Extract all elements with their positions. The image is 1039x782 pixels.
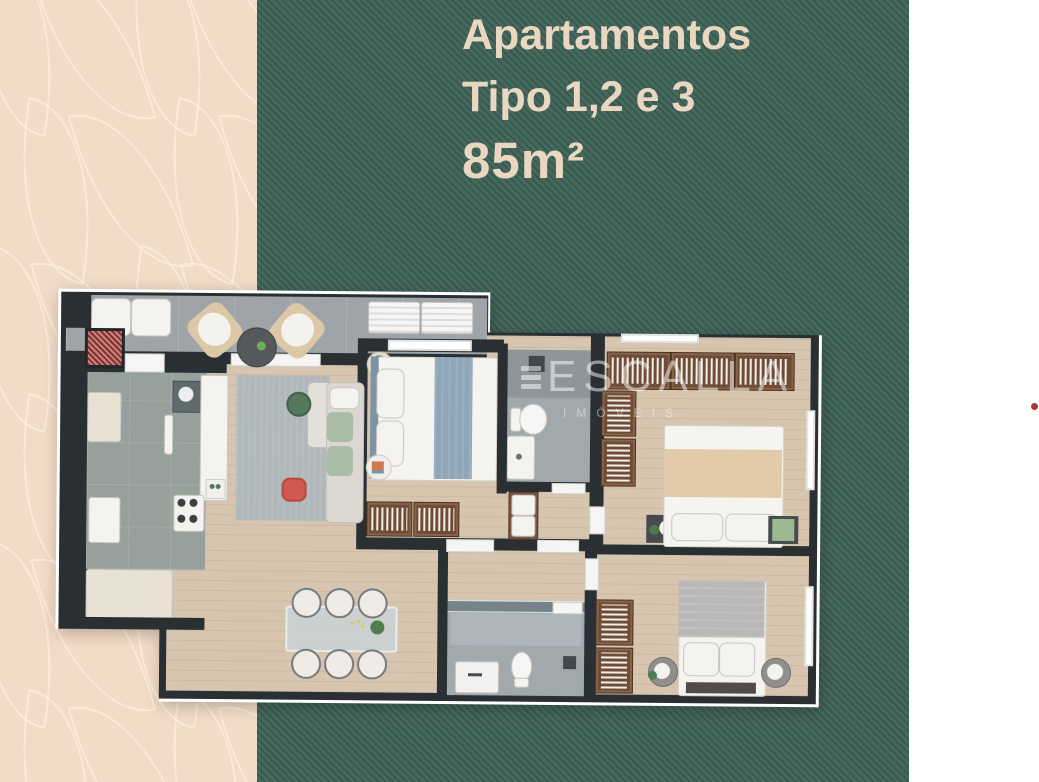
dining-chair (357, 588, 387, 618)
sofa-pillow (329, 387, 359, 409)
vertical-garden-panel (85, 328, 125, 368)
wardrobe-rack (595, 647, 633, 693)
dining-chair (324, 588, 354, 618)
burner-icon (189, 515, 197, 523)
toilet-tank (514, 678, 529, 688)
bed2-pillow (719, 642, 755, 676)
master-top-window (621, 334, 699, 344)
sofa-cushion-green (327, 446, 353, 476)
kitchen-counter-sink-cabinet (88, 497, 120, 543)
hanging-clothes (607, 443, 630, 481)
hanging-clothes (601, 604, 627, 640)
faucet-icon (468, 673, 482, 676)
sofa-cushion-green (327, 412, 353, 442)
watermark-brand: ESCALLA (547, 352, 794, 402)
plant-icon (648, 671, 657, 680)
dining-chair (291, 649, 321, 679)
kitchen-shelf (164, 415, 173, 455)
master-bed-blanket (664, 449, 782, 498)
bedroom2-side-window (804, 586, 814, 666)
bed2-gray-blanket (678, 580, 764, 638)
books-icon (372, 461, 384, 470)
bottle-icon (210, 484, 215, 489)
closet-rack-side (601, 438, 636, 486)
title-line-1: Apartamentos (462, 4, 751, 66)
title-block: Apartamentos Tipo 1,2 e 3 85m² (462, 4, 751, 194)
faucet-icon (516, 454, 522, 460)
bed2-pillow (683, 642, 719, 676)
bench-cushion (511, 516, 535, 537)
burner-icon (189, 499, 197, 507)
bathroom2-mirror-wall (450, 613, 581, 646)
red-pouf (282, 478, 307, 502)
wall-column (61, 292, 91, 328)
table-plant-icon (257, 341, 266, 350)
watermark: ESCALLA IMÓVEIS (521, 352, 794, 420)
watermark-tagline: IMÓVEIS (563, 406, 794, 420)
hanging-clothes (418, 508, 454, 531)
bedroom1-door (446, 539, 494, 552)
kitchen-counter-bottom (85, 569, 172, 620)
dining-chair (291, 588, 321, 618)
plant-icon (649, 525, 659, 535)
bed1-pillow (376, 368, 404, 418)
bathroom1-door (552, 483, 586, 494)
bedroom1-window (388, 340, 472, 352)
master-side-window (806, 410, 816, 490)
poster-page: { "page": {"width": 1039, "height": 782,… (0, 0, 1039, 782)
marble-vanity (455, 661, 499, 693)
ac-unit (368, 301, 420, 333)
plate-plant-icon (370, 620, 384, 634)
kitchen-door (125, 353, 165, 372)
white-margin (909, 0, 1039, 782)
bed1-blue-runner (434, 357, 473, 479)
burner-icon (177, 515, 185, 523)
green-mat (772, 519, 794, 541)
wall (497, 343, 508, 493)
dining-chair (324, 649, 354, 679)
wardrobe-rack (413, 502, 459, 537)
sink-basin (178, 387, 193, 402)
bedroom2-door (585, 558, 599, 590)
master-pillow (671, 513, 723, 541)
red-dot (1031, 403, 1038, 410)
minibar-bottles (206, 479, 226, 499)
lamp-icon (767, 664, 783, 680)
bottle-icon (216, 484, 221, 489)
title-line-2: Tipo 1,2 e 3 (462, 66, 751, 128)
wall (58, 617, 204, 630)
kitchen-counter-top (87, 392, 121, 442)
ac-unit (421, 302, 473, 334)
bathroom2-door (553, 602, 583, 614)
flowers-icon (348, 618, 366, 630)
laundry-unit (131, 298, 171, 336)
bench-cushion (511, 495, 535, 516)
floor-plant (286, 392, 311, 417)
hall-door (537, 540, 579, 553)
bed2-bench (686, 682, 756, 694)
dining-chair (357, 649, 387, 679)
area-label: 85m² (462, 128, 751, 194)
wardrobe-rack (595, 599, 633, 645)
triple-bar-icon (521, 366, 541, 389)
wardrobe-rack (366, 501, 412, 536)
burner-icon (177, 499, 185, 507)
hanging-clothes (371, 507, 407, 530)
shower-head-icon (563, 656, 576, 669)
hanging-clothes (601, 652, 627, 688)
wall (437, 550, 448, 700)
master-suite-door (589, 506, 605, 534)
